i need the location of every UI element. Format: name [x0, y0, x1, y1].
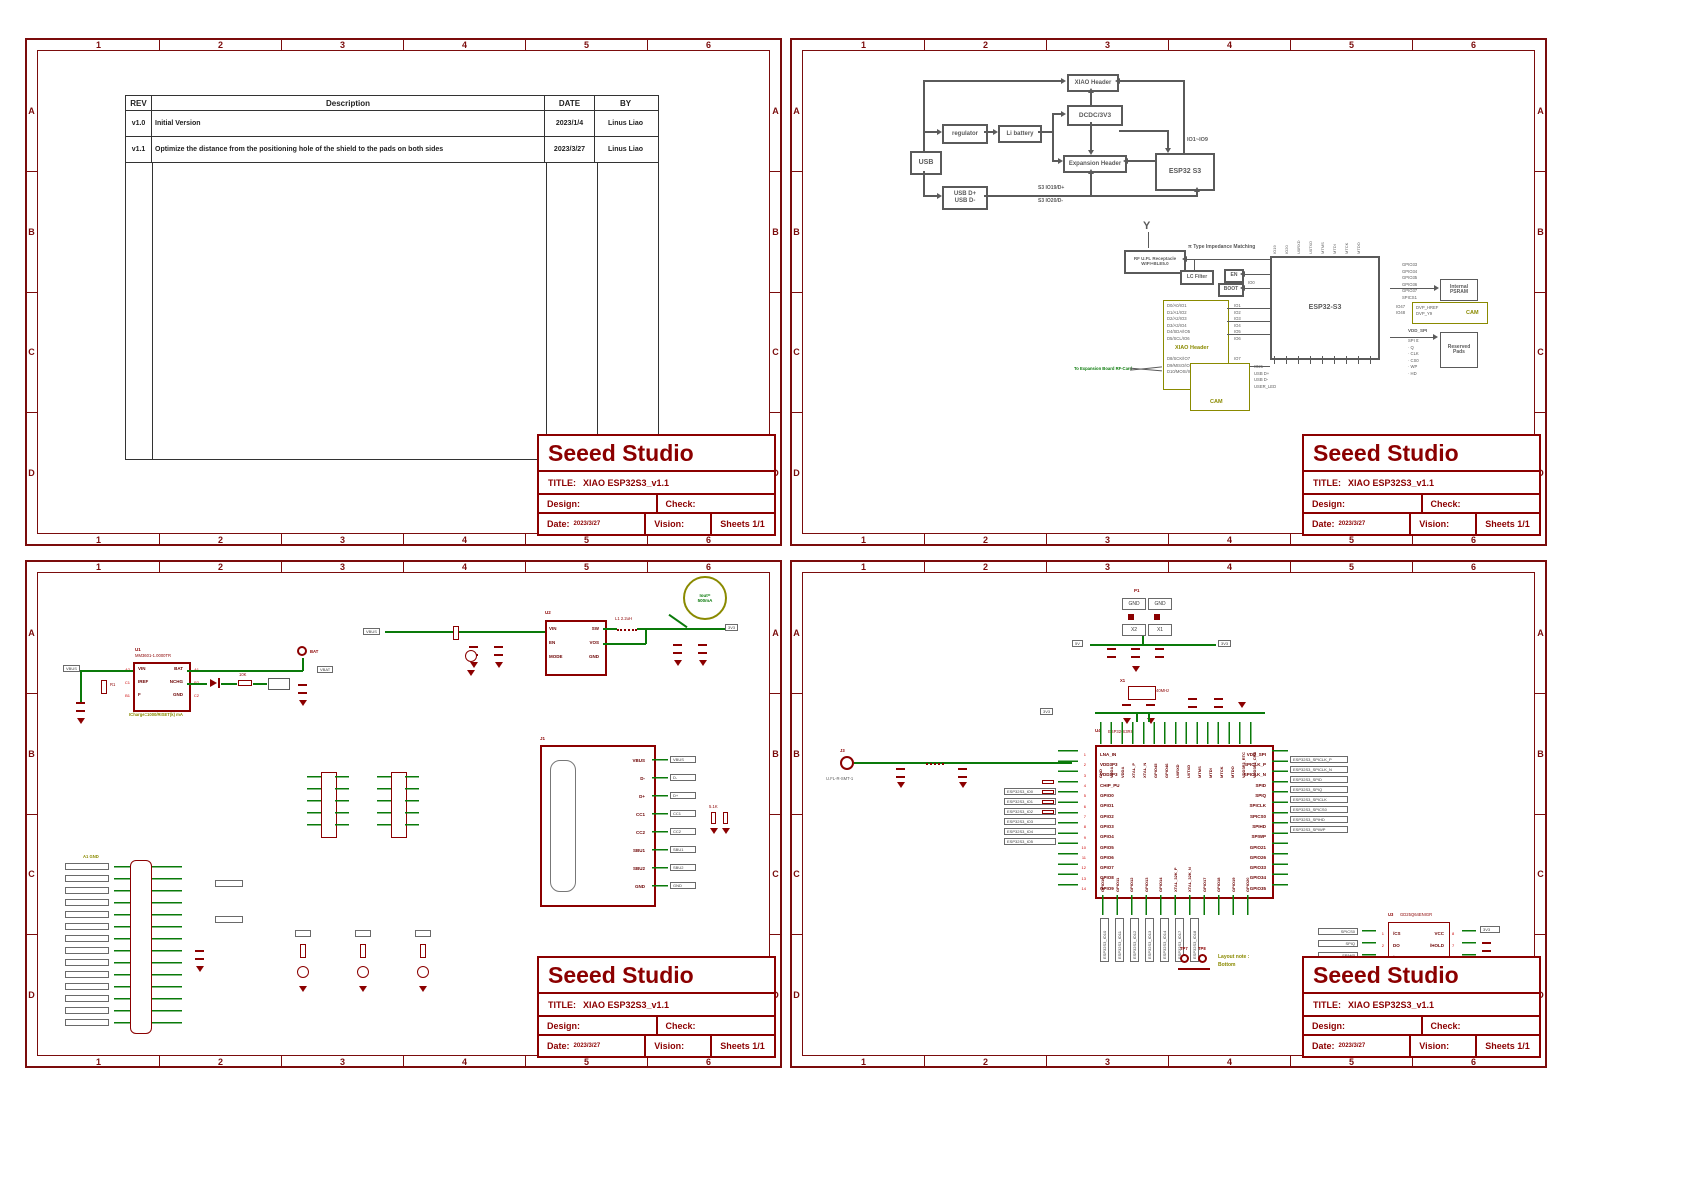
regulator-pins-right: SWVOSGND [569, 622, 599, 664]
date-label: Date: [547, 519, 570, 529]
bat-capacitor [298, 684, 307, 694]
sheet-1-revision-history: 123456 123456 ABCD ABCD REV Description … [25, 38, 782, 546]
pads-capacitor [195, 950, 204, 960]
flash-3v3-flag: 3V3 [1480, 926, 1500, 933]
revision-table-empty-area [126, 163, 658, 459]
r1-label: R1 [110, 682, 115, 688]
mcu-top-stubs [1100, 722, 1260, 744]
usb-connector-refdes: J1 [540, 736, 545, 743]
usb-pin-stubs [652, 759, 668, 903]
gnd-symbol [77, 718, 85, 724]
pads-pin-stubs [114, 866, 130, 1026]
vdda-cap [1188, 698, 1197, 708]
li-battery-block: Li battery [998, 125, 1042, 143]
revision-table-header: REV Description DATE BY [126, 96, 658, 111]
gnd-symbol [299, 700, 307, 706]
gnd-symbol [722, 828, 730, 834]
sheets-label: Sheets 1/1 [712, 514, 774, 534]
iout-note-circle: Iout= 500mA [683, 576, 727, 620]
decoupling-cap [1155, 648, 1164, 658]
psram-signal-list: GPIO33GPIO34GPIO35GPIO36GPIO37SPICS1 [1402, 262, 1417, 301]
flash-refdes: U3 [1388, 912, 1393, 918]
sheet-2-overview: 123456 123456 ABCD ABCD USB regulator Li… [790, 38, 1547, 546]
vdda-cap [1214, 698, 1223, 708]
ruler-rows-left: ABCD [26, 51, 37, 533]
cam-signals: DVP_HREF DVP_Y9 [1416, 305, 1438, 318]
pads-right-flag [215, 916, 243, 923]
usb-dp-net-label: S3 IO19/D+ [1038, 185, 1064, 193]
dcdc-block: DCDC/3V3 [1067, 105, 1123, 126]
gnd-symbol [1132, 666, 1140, 672]
ufl-part-number: U.FL-R-SMT-1 [826, 776, 853, 782]
cam-tag: CAM [1466, 309, 1479, 317]
gnd-symbol [1238, 702, 1246, 708]
schematic-document: 123456 123456 ABCD ABCD REV Description … [0, 0, 1684, 1191]
bat-test-point [297, 646, 307, 656]
charger-pins-left: VINIREFF [138, 663, 148, 702]
pad-gnd-1: GND [1122, 598, 1146, 610]
sheet-title: XIAO ESP32S3_v1.1 [583, 1000, 669, 1010]
cam-io-labels: IO47 IO48 [1396, 304, 1405, 317]
vision-label: Vision: [646, 514, 712, 534]
decoupling-cap [1107, 648, 1116, 658]
io0-label: IO0 [1248, 280, 1255, 286]
pad-x1: X1 [1148, 624, 1172, 636]
aux-resistor [453, 626, 459, 640]
regulator-block: regulator [942, 124, 988, 144]
sheet-4-mcu: 123456 123456 ABCD ABCD P1 GND GND X2 X1… [790, 560, 1547, 1068]
regulator-refdes: U2 [545, 610, 551, 617]
inductor-label: L1 2.2uH [615, 616, 632, 622]
pullup-resistor [1042, 800, 1054, 804]
mcu-left-net-flags: ESP32S3_IO0ESP32S3_IO1ESP32S3_IO2ESP32S3… [1004, 788, 1056, 848]
usb-pin-names: VBUSD-D+CC1CC2SBU1SBU2GND [601, 752, 645, 896]
pads-right-flag [215, 880, 243, 887]
company-name: Seeed Studio [1304, 436, 1539, 472]
led-resistor-value: 10K [239, 672, 246, 678]
mcu-right-net-flags: ESP32S3_SPICLK_PESP32S3_SPICLK_NESP32S3_… [1290, 756, 1348, 836]
sheet-3-power: 123456 123456 ABCD ABCD U1 MM3601-1.0000… [25, 560, 782, 1068]
decoupling-cap [1131, 648, 1140, 658]
chip-bottom-net-labels: IO21USB D+USB D-USER_LED [1254, 364, 1276, 390]
sheet-title: XIAO ESP32S3_v1.1 [1348, 1000, 1434, 1010]
vbus-net-flag: VBUS [63, 665, 80, 672]
esp32s3-block: ESP32 S3 [1155, 153, 1215, 191]
xiao-header-signals: D0/A0/IO1D1/A1/IO2D2/A2/IO3D3/A3/IO4D4/S… [1167, 303, 1190, 342]
tp8 [1198, 954, 1207, 963]
xiao-header-label: XIAO Header [1175, 344, 1209, 352]
output-cap-1 [673, 644, 682, 654]
charger-part-number: MM3601-1.0000TR [135, 653, 171, 659]
company-name: Seeed Studio [1304, 958, 1539, 994]
pullup-resistor [1042, 810, 1054, 814]
lc-filter-block: LC Filter [1180, 270, 1214, 285]
chip-top-pin-labels: IO19IO20U0RXDU0TXDMTMSMTDIMTCKMTDO [1272, 220, 1372, 254]
pads-connector-symbol [130, 860, 152, 1034]
5v-net-flag: 5V [1072, 640, 1083, 647]
crystal-value: 40MHz [1156, 688, 1169, 694]
sheet-title: XIAO ESP32S3_v1.1 [583, 478, 669, 488]
mcu-bottom-stubs [1102, 895, 1260, 915]
iout-note-text: Iout= 500mA [698, 593, 713, 603]
ruler-rows-left: ABCD [791, 51, 802, 533]
3v3-net-flag: 3V3 [725, 624, 738, 631]
ruler-rows-left: ABCD [26, 573, 37, 1055]
led-resistor [238, 680, 252, 686]
gnd-symbol [897, 782, 905, 788]
ufl-connector [840, 756, 854, 770]
esp32s3-chip-block: ESP32-S3 [1270, 256, 1380, 360]
pullup-resistor [1042, 780, 1054, 784]
company-name: Seeed Studio [539, 436, 774, 472]
inductor [617, 624, 637, 631]
mcu-left-stubs [1058, 750, 1078, 894]
revision-table: REV Description DATE BY v1.0 Initial Ver… [125, 95, 659, 460]
aux-transistor [465, 650, 477, 662]
tp7 [1180, 954, 1189, 963]
gnd-symbol [495, 662, 503, 668]
revision-row: v1.0 Initial Version 2023/1/4 Linus Liao [126, 111, 658, 137]
gnd-symbol [959, 782, 967, 788]
mcu-left-pin-numbers: 1234567891011121314 [1078, 750, 1086, 894]
cam-box-label: CAM [1210, 398, 1223, 406]
usb-data-block: USB D+ USB D- [942, 186, 988, 210]
charge-led [210, 679, 217, 687]
pad-gnd-2: GND [1148, 598, 1172, 610]
charge-current-note: ICharge=1000/RISET(k) mA [129, 712, 183, 718]
pad-x2: X2 [1122, 624, 1146, 636]
ruler-columns-top: 123456 [803, 561, 1534, 572]
iset-resistor [101, 680, 107, 694]
antenna-icon: Y [1143, 218, 1150, 235]
chip-bottom-stubs [1274, 356, 1374, 364]
ruler-rows-left: ABCD [791, 573, 802, 1055]
vdd-spi-label: VDD_SPI [1408, 328, 1427, 335]
tp8-label: TP8 [1198, 946, 1206, 952]
pads-note: A1 GND [83, 854, 99, 860]
bat-test-point-label: BAT [310, 649, 318, 655]
revision-rows: v1.0 Initial Version 2023/1/4 Linus Liao… [126, 111, 658, 163]
design-label: Design: [539, 495, 658, 512]
charger-pin-designators-left: A2C1B1 [120, 663, 130, 702]
ruler-columns-top: 123456 [38, 39, 769, 50]
internal-psram-block: Internal PSRAM [1440, 279, 1478, 301]
gnd-symbol [674, 660, 682, 666]
matching-inductor [926, 758, 944, 765]
pads-refdes: P1 [1134, 588, 1140, 595]
spi-pin-list: SPI 0:· Q· CLK· CS0· WP· HD [1408, 338, 1419, 377]
input-cap-2 [494, 646, 503, 656]
ufl-refdes: J3 [840, 748, 845, 754]
3v3-net-flag: 3V3 [1040, 708, 1053, 715]
check-label: Check: [658, 495, 775, 512]
ruler-columns-top: 123456 [803, 39, 1534, 50]
input-capacitor [76, 702, 85, 712]
gnd-symbol [699, 660, 707, 666]
title-label: TITLE: [548, 478, 576, 488]
vbus-net-flag: VBUS [363, 628, 380, 635]
rf-receptacle-block: RF U.FL Receptacle WIFI+BLE5.0 [1124, 250, 1186, 274]
reserved-pads-block: Reserved Pads [1440, 332, 1478, 368]
crystal-symbol [1128, 686, 1156, 700]
impedance-matching-label: π Type Impedance Matching [1188, 244, 1255, 252]
to-expansion-note: To Expansion Board RF-Card [1074, 366, 1132, 372]
title-block: Seeed Studio TITLE:XIAO ESP32S3_v1.1 Des… [537, 956, 776, 1058]
mcu-right-stubs [1272, 750, 1288, 894]
company-name: Seeed Studio [539, 958, 774, 994]
cc1-resistor [711, 812, 716, 824]
usb-net-flags: VBUSD-D+CC1CC2SBU1SBU2GND [670, 756, 696, 900]
pads-net-flags [65, 863, 109, 1026]
gnd-symbol [467, 670, 475, 676]
usb-dm-net-label: S3 IO20/D- [1038, 198, 1063, 206]
date-value: 2023/3/27 [574, 521, 601, 527]
title-block: Seeed Studio TITLE:XIAO ESP32S3_v1.1 Des… [1302, 956, 1541, 1058]
cc2-resistor [723, 812, 728, 824]
io-bus-label: IO1~IO9 [1187, 136, 1208, 144]
layout-note-bottom: Layout note : Bottom [1218, 954, 1249, 969]
revision-row: v1.1 Optimize the distance from the posi… [126, 137, 658, 163]
title-block: Seeed Studio TITLE:XIAO ESP32S3_v1.1 Des… [537, 434, 776, 536]
pullup-resistor [1042, 790, 1054, 794]
regulator-pins-left: VINENMODE [549, 622, 563, 664]
title-block: Seeed Studio TITLE:XIAO ESP32S3_v1.1 Des… [1302, 434, 1541, 536]
charger-pins-right: BATNCHGGND [153, 663, 183, 702]
matching-cap-1 [896, 768, 905, 778]
matching-cap-2 [958, 768, 967, 778]
mcu-bottom-pin-names: GPIO10GPIO11GPIO12GPIO13GPIO14XTAL_32K_P… [1100, 862, 1260, 892]
vbat-net-flag: VBAT [317, 666, 333, 673]
tp7-label: TP7 [1180, 946, 1188, 952]
nchg-connector [268, 678, 290, 690]
sheet-title: XIAO ESP32S3_v1.1 [1348, 478, 1434, 488]
gnd-symbol [710, 828, 718, 834]
crystal-refdes: X1 [1120, 678, 1125, 684]
usb-shell [550, 760, 576, 892]
flash-cap [1482, 942, 1491, 952]
usb-block: USB [910, 151, 942, 175]
gnd-symbol [470, 662, 478, 668]
ruler-columns-top: 123456 [38, 561, 769, 572]
cc-resistor-value: 5.1K [709, 804, 718, 810]
output-cap-2 [698, 644, 707, 654]
flash-part-number: GD25Q64ENIGR [1400, 912, 1432, 918]
3v3-net-flag: 3V3 [1218, 640, 1231, 647]
gnd-symbol [196, 966, 204, 972]
expansion-header-block: Expansion Header [1063, 155, 1127, 173]
pads-pin-stubs-right [152, 866, 182, 1026]
